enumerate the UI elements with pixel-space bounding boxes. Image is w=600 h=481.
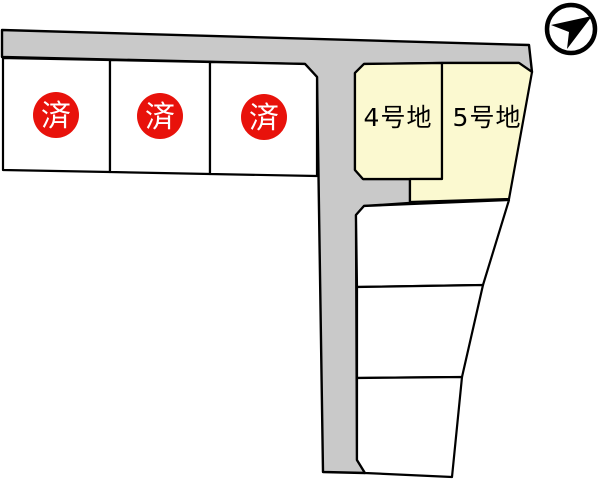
- sold-badge-3: 済: [241, 94, 287, 140]
- lot-map-page: 済 済 済 4号地 5号地: [0, 0, 600, 481]
- sold-badge-label: 済: [145, 100, 175, 135]
- vacant-lot-2: [357, 285, 483, 378]
- sold-badge-label: 済: [249, 101, 279, 136]
- lot-map-drawing: 済 済 済 4号地 5号地: [0, 0, 600, 481]
- north-arrow-icon: [547, 5, 595, 53]
- lot-4-label: 4号地: [364, 103, 433, 132]
- sold-badge-1: 済: [33, 92, 79, 138]
- vacant-lot-3: [357, 377, 462, 477]
- vacant-lot-1: [356, 200, 509, 287]
- lot-5-label: 5号地: [453, 103, 522, 132]
- sold-badge-2: 済: [137, 93, 183, 139]
- sold-badge-label: 済: [41, 99, 71, 134]
